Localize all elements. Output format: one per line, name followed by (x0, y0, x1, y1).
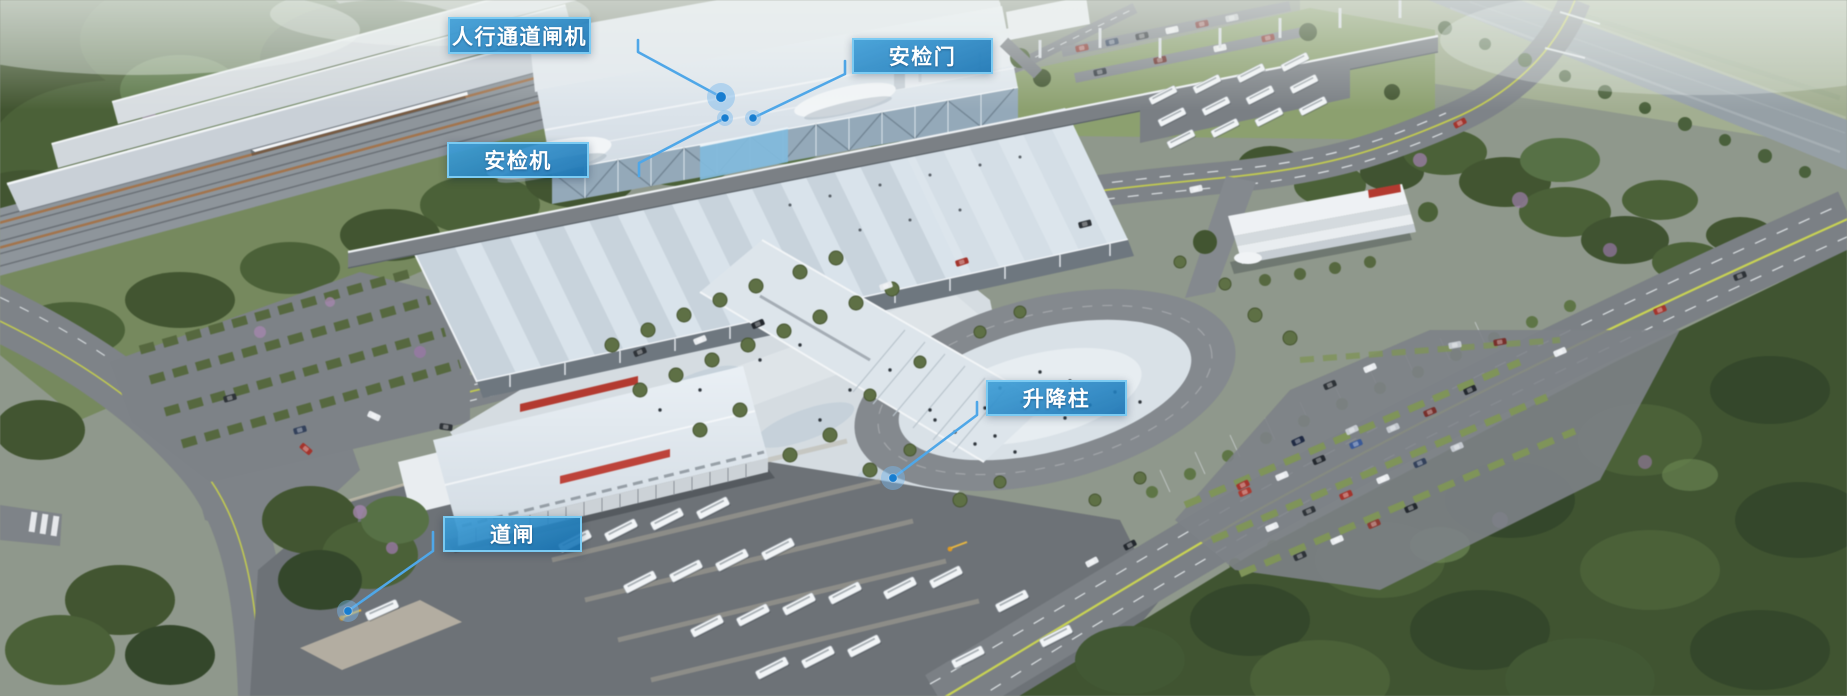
label-security-door[interactable]: 安检门 (852, 38, 993, 74)
aerial-render-background (0, 0, 1847, 696)
label-pedestrian-gate[interactable]: 人行通道闸机 (448, 17, 591, 54)
station-aerial-annotated-rendering: 人行通道闸机 安检门 安检机 升降柱 道闸 (0, 0, 1847, 696)
label-security-scanner[interactable]: 安检机 (447, 142, 589, 178)
label-road-barrier[interactable]: 道闸 (443, 516, 582, 552)
label-lift-bollard[interactable]: 升降柱 (986, 380, 1127, 416)
